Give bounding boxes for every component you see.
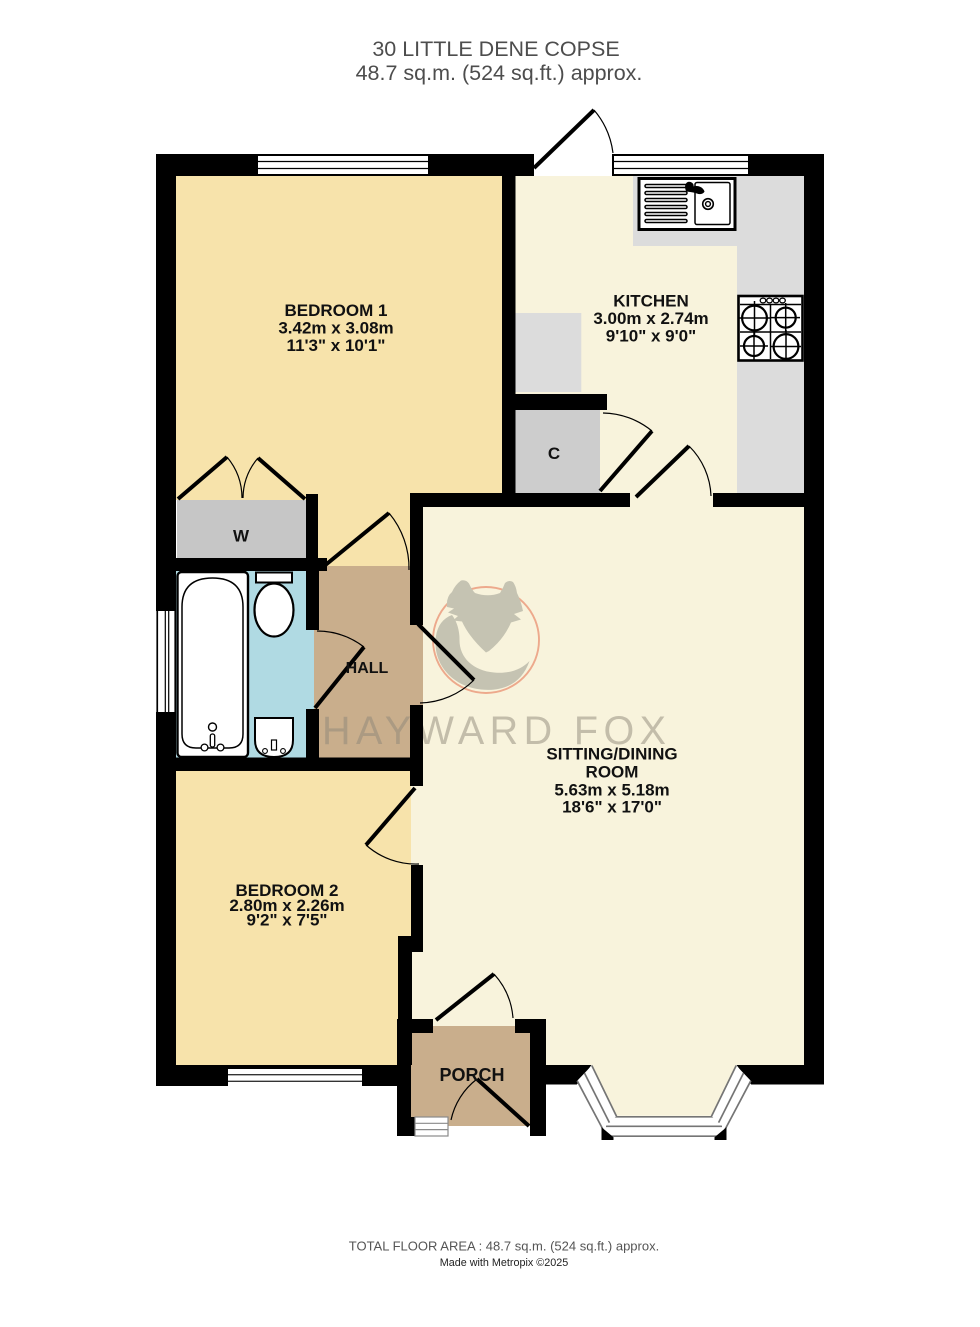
svg-text:ROOM: ROOM	[586, 763, 639, 782]
svg-text:KITCHEN: KITCHEN	[613, 292, 689, 311]
svg-text:Made with Metropix ©2025: Made with Metropix ©2025	[440, 1257, 569, 1269]
svg-text:9'10" x 9'0": 9'10" x 9'0"	[606, 327, 696, 346]
svg-text:11'3" x 10'1": 11'3" x 10'1"	[287, 336, 386, 355]
svg-text:SITTING/DINING: SITTING/DINING	[546, 745, 677, 764]
svg-text:BEDROOM 1: BEDROOM 1	[285, 301, 388, 320]
svg-text:3.00m x 2.74m: 3.00m x 2.74m	[593, 309, 708, 328]
svg-text:PORCH: PORCH	[439, 1065, 504, 1085]
svg-text:C: C	[548, 444, 560, 463]
svg-text:30 LITTLE DENE COPSE: 30 LITTLE DENE COPSE	[372, 37, 619, 61]
svg-text:18'6" x 17'0": 18'6" x 17'0"	[562, 798, 662, 817]
svg-text:3.42m x 3.08m: 3.42m x 3.08m	[278, 319, 393, 338]
svg-text:W: W	[233, 527, 250, 546]
svg-text:48.7 sq.m. (524 sq.ft.) approx: 48.7 sq.m. (524 sq.ft.) approx.	[356, 61, 643, 85]
svg-text:9'2" x 7'5": 9'2" x 7'5"	[247, 911, 328, 930]
svg-text:TOTAL FLOOR AREA : 48.7 sq.m.: TOTAL FLOOR AREA : 48.7 sq.m. (524 sq.ft…	[349, 1239, 659, 1254]
svg-text:HALL: HALL	[346, 660, 389, 677]
